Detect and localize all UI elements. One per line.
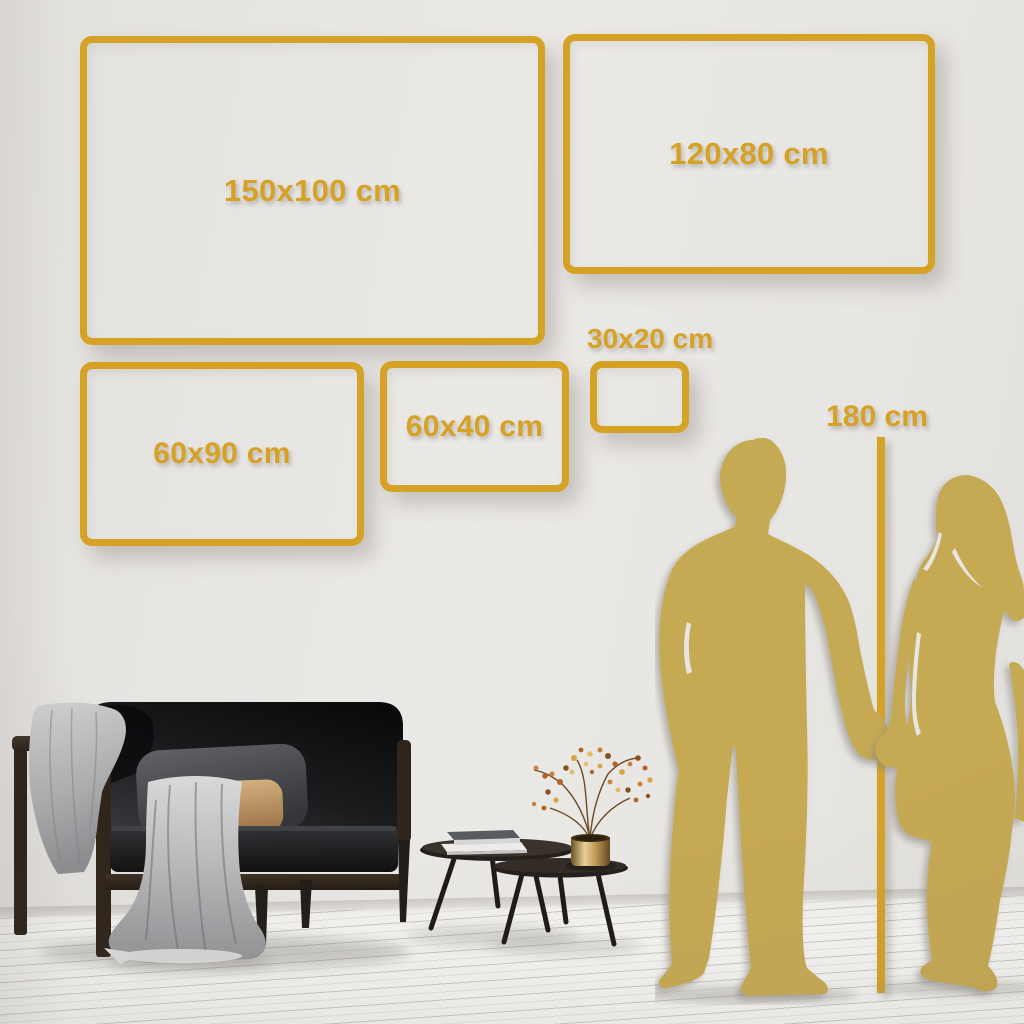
size-frame-120x80: 120x80 cm xyxy=(563,34,935,274)
size-guide-mockup: 150x100 cm 120x80 cm 60x90 cm 60x40 cm 3… xyxy=(0,0,1024,1024)
size-label-120x80: 120x80 cm xyxy=(669,136,829,172)
dried-flower-branch xyxy=(532,748,653,840)
size-frame-30x20 xyxy=(590,361,689,433)
height-marker-label: 180 cm xyxy=(810,400,944,434)
sofa-leg xyxy=(398,840,410,922)
man-silhouette xyxy=(659,438,890,996)
woman-silhouette xyxy=(876,475,1024,991)
sofa-leg xyxy=(300,880,312,928)
sofa-leg xyxy=(14,748,27,935)
size-frame-60x40: 60x40 cm xyxy=(380,361,569,492)
couple-silhouette xyxy=(655,430,1024,1005)
size-label-60x40: 60x40 cm xyxy=(406,410,544,444)
living-room-scene xyxy=(0,660,680,1000)
dried-berries xyxy=(532,748,653,811)
size-label-150x100: 150x100 cm xyxy=(224,173,401,209)
nesting-coffee-tables xyxy=(420,748,653,945)
size-frame-60x90: 60x90 cm xyxy=(80,362,364,546)
size-frame-150x100: 150x100 cm xyxy=(80,36,545,345)
size-label-30x20: 30x20 cm xyxy=(587,323,713,355)
sofa-frame-post xyxy=(397,740,411,842)
brass-vase xyxy=(565,834,617,871)
size-label-60x90: 60x90 cm xyxy=(153,437,291,471)
